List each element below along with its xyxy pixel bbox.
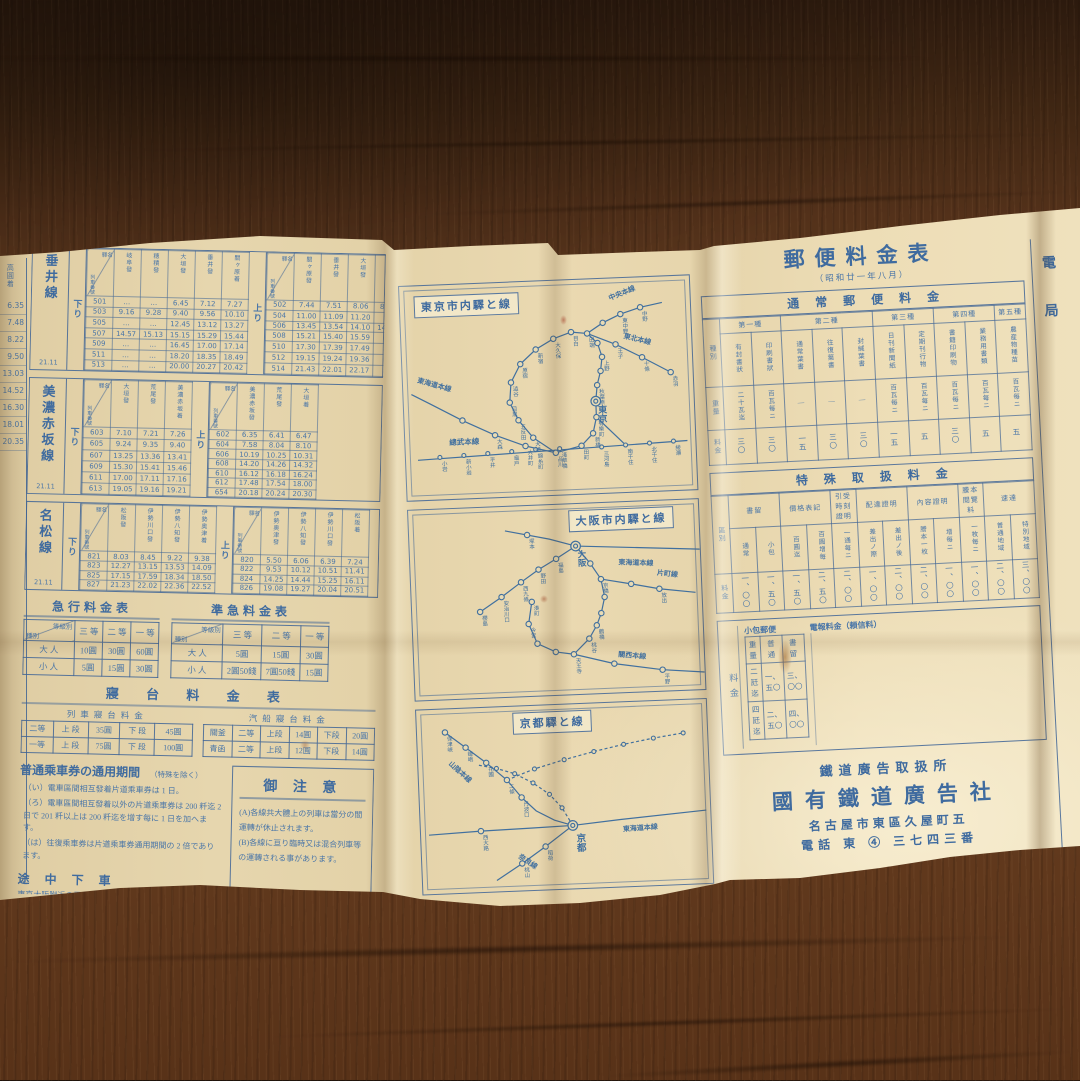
fee-cell: 一、〇〇 — [936, 562, 963, 602]
ordinary-mail-table: 種別第一種第二種第三種第四種第五種有封書狀印刷書狀通常葉書往復葉書封緘葉書日刊新… — [702, 303, 1033, 466]
time-cell: 15.21 — [292, 331, 319, 343]
corner-train-label: 列車番號 — [82, 530, 89, 550]
station-header: 伊勢八知發 — [288, 509, 316, 557]
corner-cell: 驛名列車番號 — [209, 383, 237, 431]
timetable-table: 驛名列車番號伊勢奥津發伊勢八知發伊勢川口發松阪着8205.506.066.397… — [232, 507, 370, 596]
timetable-table: 驛名列車番號大垣發荒尾發美濃赤坂着6037.107.217.266059.249… — [81, 379, 193, 497]
fee-cell: 一、五〇 — [783, 570, 810, 610]
weight-cell: 百瓦每ニ — [875, 378, 908, 422]
express-fare-title: 急行料金表 — [24, 597, 161, 620]
station-name: 伊勢奥津着 — [199, 509, 206, 544]
mail-type-name: 業務用書類 — [977, 328, 986, 366]
station-header: 美濃赤坂發 — [236, 383, 264, 431]
berth-cell: 35圓 — [88, 722, 120, 739]
time-cell: 509 — [85, 338, 112, 349]
time-cell: 10.31 — [290, 451, 317, 461]
map-labels: 塚本福島野田西九條安治川口櫻島京橋鶴橋桃谷天王寺放出湊町今宮平野東海道本線片町線… — [478, 531, 683, 691]
weight-text: 百瓦每ニ — [918, 382, 926, 412]
row-label-text: 區別 — [717, 526, 725, 542]
parcel-corner: 重量 — [745, 636, 761, 664]
fee-cell: 一、〇〇 — [732, 572, 759, 612]
time-cell: 510 — [265, 341, 292, 353]
fee-text: 三〇 — [737, 437, 746, 454]
station-name: 關ヶ原發 — [304, 256, 311, 284]
time-cell: 513 — [85, 359, 112, 370]
fare-cell: 2圓50錢 — [222, 662, 261, 680]
handling-type-cell: 百圓增每 — [806, 524, 834, 570]
time-cell: 5.50 — [260, 555, 287, 565]
time-cell: 着 — [373, 365, 386, 377]
map-stations — [442, 720, 690, 869]
svg-text:東海道本線: 東海道本線 — [618, 557, 653, 567]
weight-text: 百瓦每ニ — [765, 390, 773, 420]
partial-time-cell: 16.30 — [0, 400, 26, 417]
time-cell: 610 — [208, 468, 235, 478]
fare-cell: 30圓 — [130, 660, 159, 678]
time-cell: … — [113, 318, 140, 329]
notice-item: (B)各線に亘り臨時又は混合列車等の運轉される事があります。 — [238, 835, 365, 868]
svg-text:湊町: 湊町 — [532, 604, 539, 617]
time-cell: 13.45 — [293, 321, 320, 331]
fee-cell: 三〇 — [939, 418, 971, 454]
svg-text:原宿: 原宿 — [521, 367, 528, 380]
time-cell: 9.40 — [167, 308, 194, 319]
time-cell: 13.15 — [134, 562, 161, 572]
time-cell: 505 — [86, 317, 113, 328]
svg-text:天王寺: 天王寺 — [575, 657, 582, 674]
handling-type-name: 謄本一枚 — [918, 526, 926, 556]
validity-item: （ろ）電車區間相互發着以外の片道乘車券は 200 粁迄 2 日で 201 粁以上… — [23, 797, 222, 839]
timetable-table: 驛名列車番號松阪發伊勢川口發伊勢八知發伊勢奥津着8218.038.459.229… — [79, 504, 217, 593]
validity-subtitle: （特殊を除く） — [150, 770, 203, 780]
time-cell: … — [112, 339, 139, 350]
weight-cell: 百瓦每ニ — [906, 376, 939, 420]
station-header: 關ヶ原着 — [221, 252, 249, 300]
class-group-header: 第五種 — [994, 304, 1025, 320]
svg-text:龜戸: 龜戸 — [512, 454, 519, 468]
line-date: 21.11 — [39, 358, 58, 366]
handling-type-cell: 一通每ニ — [832, 522, 860, 568]
svg-text:今宮: 今宮 — [529, 626, 536, 640]
fee-text: 三〇 — [828, 432, 837, 449]
mail-type-cell: 通常葉書 — [781, 329, 814, 383]
time-cell: 10.10 — [221, 309, 248, 320]
svg-text:秋葉原: 秋葉原 — [598, 387, 605, 405]
timetable-body: 5027.447.518.068.188.2650411.0011.0911.2… — [265, 300, 386, 378]
station-name: 垂井發 — [331, 257, 338, 278]
fee-text: 三〇 — [950, 426, 959, 443]
advertiser-footer: 鐵道廣告取扱所 國有鐵道廣告社 名古屋市東區久屋町五 電話 東 ④ 三七四三番 — [724, 750, 1052, 858]
table-row: 重量普 通書 留 — [745, 634, 805, 664]
partial-time-cell: 6.35 — [0, 298, 26, 315]
time-cell: 14.09 — [188, 563, 215, 573]
partial-time-cell: 8.22 — [0, 332, 26, 349]
svg-text:東海道本線: 東海道本線 — [416, 376, 452, 394]
svg-text:平井: 平井 — [488, 457, 495, 470]
time-cell: 514 — [265, 363, 292, 375]
fare-cell: 15圓 — [102, 659, 131, 677]
weight-cell: ― — [845, 379, 878, 423]
time-cell: 20.42 — [220, 362, 247, 373]
notice-box: 御 注 意 (A)各線共大體上の列車は當分の間運轉が休止されます。 (B)各線に… — [229, 765, 374, 901]
svg-text:中野: 中野 — [641, 309, 648, 322]
svg-text:片町線: 片町線 — [657, 568, 679, 579]
weight-cell: ― — [784, 382, 817, 426]
time-cell: 6.41 — [263, 431, 290, 441]
time-cell: 着 — [374, 312, 386, 324]
corner-bottom-label: 種別 — [174, 633, 187, 643]
timetable-body: 8218.038.459.229.3882312.2713.1513.5314.… — [80, 551, 216, 592]
station-name: 美濃赤坂發 — [247, 386, 254, 421]
fare-cell: 10圓 — [74, 641, 103, 659]
line-name: 美濃赤坂線 — [39, 384, 54, 464]
weight-cell: 百瓦每ニ — [753, 384, 786, 428]
time-cell: 14.57 — [112, 328, 139, 339]
weight-cell: ― — [814, 381, 847, 425]
time-cell: 7.12 — [194, 298, 221, 309]
corner-train-label: 列車番號 — [88, 274, 95, 294]
time-cell: 18.50 — [188, 573, 215, 583]
berth-tables-row: 列車寢台料金 二等上 段35圓下 段45圓一等上 段75圓下 段100圓 汽船寢… — [21, 707, 376, 761]
handling-group-header: 速達 — [983, 481, 1036, 516]
time-cell: 9.38 — [188, 553, 215, 563]
map-tokyo: 東京市内驛と線品川大崎五反田目黒澁谷原宿新宿大久保目白田端上野秋葉原有樂町新橋田… — [398, 274, 698, 502]
svg-text:安治川口: 安治川口 — [502, 599, 510, 624]
time-cell: 12.45 — [167, 319, 194, 330]
time-cell: 21.43 — [292, 364, 319, 376]
timetable-body: 501……6.457.127.275039.169.289.409.5610.1… — [85, 296, 249, 374]
row-label: 重量 — [706, 387, 725, 431]
map-title-kyoto: 京都驛と線 — [512, 710, 592, 735]
time-cell: 823 — [80, 561, 107, 571]
station-name: 伊勢川口發 — [325, 512, 332, 547]
station-header: 荒尾發 — [137, 381, 165, 429]
map-title-tokyo: 東京市内驛と線 — [413, 292, 519, 318]
station-name: 松阪着 — [352, 513, 359, 534]
fee-cell: 一、〇〇 — [961, 561, 988, 601]
class-header: 一 等 — [300, 625, 329, 647]
time-cell: 11.20 — [347, 311, 374, 323]
line-name: 名松線 — [37, 509, 52, 557]
berth-cell: 下段 — [317, 727, 346, 744]
fee-cell: 三、〇〇 — [1012, 559, 1039, 599]
handling-type-cell: 小包 — [755, 526, 783, 572]
mail-type-name: 印刷書狀 — [763, 342, 771, 372]
train-berth-table: 列車寢台料金 二等上 段35圓下 段45圓一等上 段75圓下 段100圓 — [21, 707, 194, 757]
time-cell: 14.10 — [347, 322, 374, 332]
handling-type-cell: 通常 — [730, 527, 758, 573]
time-cell: 14.32 — [289, 460, 316, 470]
handling-group-header: 配達證明 — [855, 487, 908, 522]
time-cell: 11.09 — [320, 311, 347, 323]
table-row: 61319.0519.1619.21 — [82, 483, 190, 497]
time-cell: 13.54 — [320, 322, 347, 332]
svg-text:東北本線: 東北本線 — [623, 331, 652, 346]
time-cell: 604 — [209, 439, 236, 449]
handling-type-name: 百圓迄 — [790, 536, 798, 559]
timetable-line-0: 垂井線21.11下り驛名列車番號岐阜發穂積發大垣發垂井發關ヶ原着501……6.4… — [29, 246, 386, 378]
handling-type-name: 一枚每ニ — [969, 523, 977, 553]
weight-text: 二十瓦迄 — [735, 391, 743, 421]
time-cell: 826 — [233, 583, 260, 593]
row-label-text: 料金 — [713, 438, 721, 454]
line-date: 21.11 — [34, 578, 53, 586]
svg-text:京橋: 京橋 — [602, 581, 609, 595]
fee-cell: 五 — [1000, 415, 1032, 451]
time-cell: 19.16 — [136, 484, 163, 496]
svg-text:錦糸町: 錦糸町 — [536, 452, 543, 470]
parcel-telegram-stamp-section: 料金小包郵便重量普 通書 留二瓩迄一、五〇三、〇〇四瓩迄二、五〇四、〇〇電報料金… — [717, 605, 1047, 756]
time-cell: 17.39 — [319, 342, 346, 354]
fee-text: 二、〇〇 — [995, 562, 1005, 596]
time-cell: 15.41 — [136, 462, 163, 474]
time-cell: 7.58 — [236, 440, 263, 450]
time-cell: 17.48 — [235, 478, 262, 488]
fare-table: 等級別種別三 等二 等一 等大 人5圓15圓30圓小 人2圓50錢7圓50錢15… — [171, 622, 330, 682]
svg-text:新橋: 新橋 — [594, 435, 601, 449]
station-header: 松阪發 — [108, 505, 136, 553]
partial-time-cell: 18.01 — [0, 417, 26, 434]
parcel-fee-cell: 二、五〇 — [763, 700, 787, 739]
handling-type-name: 通常 — [740, 542, 748, 557]
table-row: 82619.0819.2720.0420.51 — [233, 583, 368, 596]
weight-text: ― — [827, 398, 834, 406]
time-cell: … — [139, 339, 166, 350]
time-cell: 9.22 — [161, 553, 188, 563]
time-cell: 16.18 — [262, 469, 289, 479]
berth-cell: 上 段 — [53, 721, 88, 738]
time-cell: 22.02 — [134, 581, 161, 591]
handling-type-name: 差出ノ際 — [867, 528, 875, 558]
time-cell: 17.11 — [136, 473, 163, 485]
corner-train-label: 列車番號 — [235, 533, 242, 553]
time-cell: 14.20 — [235, 459, 262, 469]
time-cell: 8.10 — [290, 441, 317, 451]
timetable-body: 6037.107.217.266059.249.359.4060713.2513… — [82, 427, 191, 497]
timetable-head: 驛名列車番號美濃赤坂發荒尾發大垣着 — [209, 383, 318, 432]
berth-cell: 上 段 — [53, 737, 88, 754]
berth-cell: 上段 — [260, 726, 289, 743]
corner-station-label: 驛名 — [99, 382, 110, 390]
time-cell: 16.45 — [166, 340, 193, 351]
time-cell: 11.41 — [341, 567, 368, 577]
partial-column-times: 6.357.488.229.5013.0314.5216.3018.0120.3… — [0, 298, 26, 451]
corner-train-label: 列車番號 — [268, 278, 275, 298]
time-cell: 820 — [233, 554, 260, 564]
station-header: 垂井發 — [194, 251, 222, 299]
station-header: 大垣發 — [347, 255, 375, 303]
fee-cell: 一、〇〇 — [859, 566, 886, 606]
time-cell: 8.03 — [107, 552, 134, 562]
time-cell: 12.27 — [107, 561, 134, 571]
time-cell: 22.17 — [346, 365, 373, 377]
fee-text: 一、五〇 — [792, 572, 802, 606]
timetable-body: 6026.356.416.476047.588.048.1060610.1910… — [208, 430, 317, 500]
time-cell: 9.53 — [260, 565, 287, 575]
map-kyoto: 京都驛と線保津峽嵯峨花園二條丹波口西大路稻荷桃山山陰本線奈良線東海道本線京都 — [415, 698, 714, 896]
mail-type-cell: 往復葉書 — [812, 328, 845, 382]
time-cell: 508 — [265, 330, 292, 342]
partial-time-cell: 7.48 — [0, 315, 26, 332]
handling-type-cell: 特別地域 — [1010, 514, 1038, 560]
time-cell: 17.54 — [262, 479, 289, 489]
time-cell: 20.18 — [235, 488, 262, 498]
time-cell: 611 — [82, 472, 109, 484]
express-fare-table: 急行料金表 等級別種別三 等二 等一 等大 人10圓30圓60圓小 人5圓15圓… — [22, 597, 160, 678]
time-cell: 825 — [80, 570, 107, 580]
svg-text:王子: 王子 — [616, 347, 623, 359]
semi-express-fare-table: 準急料金表 等級別種別三 等二 等一 等大 人5圓15圓30圓小 人2圓50錢7… — [171, 600, 330, 682]
fee-cell: 一五 — [786, 425, 818, 461]
timetable-head: 驛名列車番號岐阜發穂積發大垣發垂井發關ヶ原着 — [86, 249, 249, 300]
fare-cell: 15圓 — [300, 663, 329, 681]
wood-grain-streak — [0, 933, 1020, 967]
svg-text:關西本線: 關西本線 — [618, 649, 647, 660]
svg-text:大森: 大森 — [496, 437, 503, 451]
table-row: 65420.1820.2420.30 — [208, 487, 316, 499]
time-cell: 15.59 — [346, 332, 373, 344]
fee-text: 二、〇〇 — [843, 569, 853, 603]
svg-text:總武本線: 總武本線 — [449, 436, 480, 447]
table-row: 513……20.0020.2720.42 — [85, 359, 247, 373]
fee-text: 五 — [920, 432, 928, 441]
time-cell: 8.06 — [347, 302, 374, 312]
stopover-title: 途 中 下 車 — [17, 870, 219, 892]
table-row: 一等上 段75圓下 段100圓 — [21, 736, 192, 756]
handling-type-name: 增每ニ — [943, 528, 951, 551]
station-header: 伊勢奥津發 — [261, 508, 289, 556]
fee-text: 三〇 — [859, 431, 868, 448]
mail-type-cell: 農産物種苗 — [995, 319, 1028, 373]
table-row: 驛名列車番號關ヶ原發垂井發大垣發穂積發岐阜着 — [266, 253, 386, 304]
berth-cell: 100圓 — [154, 739, 192, 756]
time-cell: 503 — [86, 306, 113, 317]
berth-cell: 二等 — [231, 741, 260, 758]
handling-group-header: 價格表記 — [779, 491, 832, 526]
corner-cell: 驛名列車番號 — [83, 380, 111, 428]
time-cell: 6.39 — [314, 556, 341, 566]
handling-group-header: 引受時刻證明 — [830, 489, 857, 523]
station-header: 伊勢奥津着 — [189, 506, 217, 554]
time-cell: 15.13 — [139, 329, 166, 340]
station-name: 大垣發 — [358, 257, 365, 278]
time-cell: 22.52 — [188, 582, 215, 592]
mail-type-name: 封緘葉書 — [855, 337, 863, 367]
map-osaka: 大阪市内驛と線塚本福島野田西九條安治川口櫻島京橋鶴橋桃谷天王寺放出湊町今宮平野東… — [407, 498, 706, 702]
time-cell: 609 — [82, 460, 109, 472]
table-row: 驛名列車番號岐阜發穂積發大垣發垂井發關ヶ原着 — [86, 249, 249, 300]
fee-cell: 三〇 — [755, 427, 787, 463]
fee-text: 三〇 — [767, 435, 776, 452]
time-cell: … — [140, 318, 167, 329]
station-header: 大垣着 — [290, 385, 318, 433]
time-cell: 22.01 — [319, 364, 346, 376]
timetable-head: 驛名列車番號伊勢奥津發伊勢八知發伊勢川口發松阪着 — [234, 508, 370, 558]
svg-text:目白: 目白 — [572, 335, 579, 348]
station-name: 關ヶ原着 — [232, 255, 239, 283]
svg-text:西大路: 西大路 — [482, 834, 489, 852]
class-header: 一 等 — [131, 622, 160, 644]
ticket-validity-block: 普通乘車券の通用期間 （特殊を除く） （い）電車區間相互發着片道乘車券は 1 日… — [17, 761, 222, 902]
time-cell: 21.23 — [107, 580, 134, 590]
corner-top-label: 等級別 — [201, 624, 221, 634]
time-cell: 608 — [209, 459, 236, 469]
table-row: 青函二等上段12圓下段14圓 — [203, 740, 374, 760]
fare-cell: 5圓 — [223, 645, 262, 663]
time-cell: … — [112, 360, 139, 371]
berth-cell: 下 段 — [120, 722, 155, 739]
station-name: 穂積發 — [385, 258, 386, 279]
notice-title: 御 注 意 — [240, 775, 367, 802]
time-cell: 506 — [266, 320, 293, 330]
station-name: 荒尾發 — [148, 384, 155, 405]
time-cell: 着 — [373, 332, 386, 344]
station-name: 松阪發 — [118, 507, 125, 528]
svg-text:嵯峨: 嵯峨 — [466, 750, 473, 764]
validity-item: （い）電車區間相互發着片道乘車券は 1 日。 — [24, 782, 222, 799]
telegram-fees-block-lines: 普通報 十字マデ 一、五〇五字增每ニ 、五〇至急報 普通ノ三倍時間外發着 自午後… — [810, 618, 1080, 746]
parcel-fee-cell: 四、〇〇 — [785, 699, 809, 738]
time-cell: 7.27 — [221, 299, 248, 310]
time-cell: 17.59 — [134, 571, 161, 581]
table-row: 等級別種別三 等二 等一 等 — [24, 619, 160, 643]
time-cell: … — [113, 296, 140, 307]
validity-item: （は）往復乘車券は片道乘車券通用期間の 2 倍であります。 — [22, 837, 221, 866]
time-cell: 501 — [86, 296, 113, 307]
mail-type-cell: 定期刊行物 — [903, 323, 936, 377]
fee-cell: 一五 — [878, 421, 910, 457]
time-cell: 9.16 — [113, 307, 140, 318]
berth-cell: 14圓 — [345, 743, 374, 760]
svg-text:田町: 田町 — [582, 449, 589, 461]
table-row: 二瓩迄一、五〇三、〇〇 — [746, 661, 806, 702]
mail-type-cell: 書籍印刷物 — [934, 322, 967, 376]
time-cell: 18.34 — [161, 572, 188, 582]
mail-type-cell: 日刊新聞紙 — [873, 325, 906, 379]
table-row: 驛名列車番號美濃赤坂發荒尾發大垣着 — [209, 383, 318, 432]
fee-cell: 三〇 — [847, 422, 879, 458]
stopover-text: 東京大阪附近の電車區間内相互發着普通乘車券又は回數乘車券では途中下車は出來ません… — [17, 889, 219, 902]
station-name: 荒尾發 — [274, 387, 281, 408]
svg-text:大井町: 大井町 — [526, 448, 533, 466]
corner-train-label: 列車番號 — [85, 405, 92, 425]
weight-text: ― — [858, 396, 865, 404]
wood-grain-streak — [420, 188, 1080, 217]
station-header: 伊勢川口發 — [315, 509, 343, 557]
handling-type-name: 百圓增每 — [816, 531, 824, 561]
fee-text: 一五 — [798, 434, 807, 451]
time-cell: 11.00 — [293, 310, 320, 322]
svg-text:上野: 上野 — [603, 359, 610, 372]
time-cell: 822 — [233, 564, 260, 574]
svg-text:大久保: 大久保 — [554, 341, 562, 360]
timetable-head: 驛名列車番號關ヶ原發垂井發大垣發穂積發岐阜着 — [266, 253, 386, 304]
fare-cell: 30圓 — [102, 642, 131, 660]
berth-cell: 一等 — [21, 736, 53, 753]
berth-cell: 20圓 — [346, 727, 375, 744]
time-cell: 20.00 — [166, 361, 193, 372]
station-header: 荒尾發 — [263, 384, 291, 432]
berth-cell: 二等 — [21, 720, 53, 737]
time-cell: 19.21 — [163, 485, 190, 497]
time-cell: 着 — [373, 354, 386, 366]
handling-type-name: 差出ノ後 — [892, 527, 900, 557]
weight-text: ― — [797, 399, 804, 407]
timetable-table: 驛名列車番號關ヶ原發垂井發大垣發穂積發岐阜着5027.447.518.068.1… — [264, 252, 386, 378]
time-cell: 17.49 — [346, 343, 373, 355]
svg-text:新小岩: 新小岩 — [464, 458, 472, 477]
berth-cell: 下 段 — [119, 738, 154, 755]
